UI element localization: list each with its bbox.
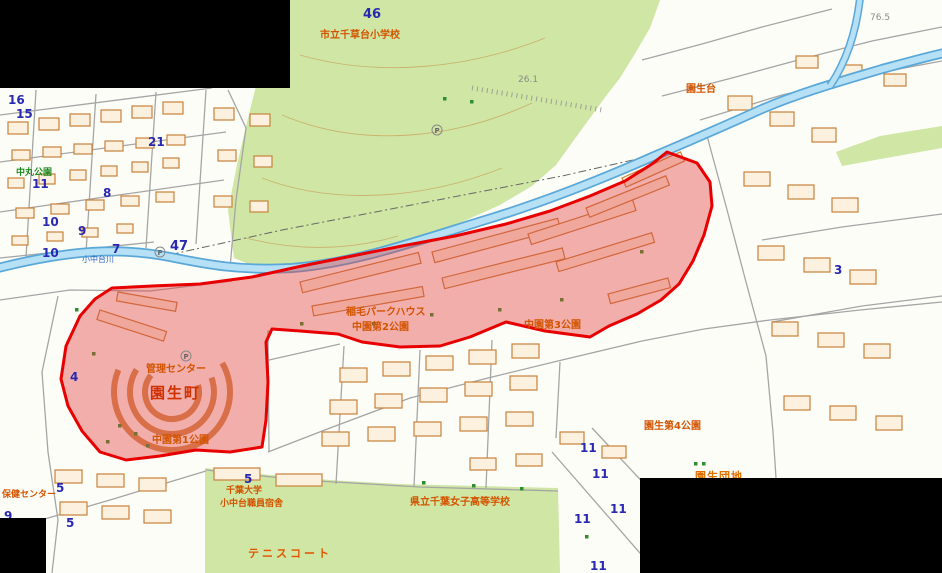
block-number: 3 (834, 263, 842, 277)
block-number: 10 (42, 246, 59, 260)
block-number: 5 (66, 516, 74, 530)
block-number: 8 (103, 186, 111, 200)
svg-text:P: P (435, 127, 440, 135)
elevation-point: 26.1 (518, 75, 538, 85)
label-nakazono3-park: 中園第3公園 (524, 318, 581, 331)
label-nakazono1-park: 中園第1公園 (152, 433, 209, 446)
map-canvas[interactable]: P P P 46 市立千草台小学校 26.1 76.5 園生台 16 15 21… (0, 0, 942, 573)
block-number: 11 (610, 502, 627, 516)
label-univ-dorm: 小中台職員宿舎 (219, 497, 284, 509)
block-number: 46 (363, 7, 381, 22)
svg-text:P: P (158, 249, 163, 257)
label-river-name: 小中台川 (82, 254, 114, 264)
label-tennis-court: テニスコート (248, 547, 332, 560)
block-number: 5 (244, 472, 252, 486)
block-number: 47 (170, 239, 188, 254)
block-number: 11 (590, 559, 607, 573)
label-girls-school: 県立千葉女子高等学校 (410, 495, 511, 508)
block-number: 11 (32, 177, 49, 191)
elevation-point: 76.5 (870, 13, 890, 23)
block-number: 11 (580, 441, 597, 455)
block-number: 10 (42, 215, 59, 229)
city-map[interactable]: P P P 46 市立千草台小学校 26.1 76.5 園生台 16 15 21… (0, 0, 942, 573)
label-health-center: 保健センター (1, 488, 56, 500)
label-sonno4-park: 園生第4公園 (644, 419, 701, 432)
block-number: 21 (148, 135, 165, 149)
block-number: 16 (8, 93, 25, 107)
block-number: 5 (56, 481, 64, 495)
block-number: 11 (592, 467, 609, 481)
label-park-house: 稲毛パークハウス (346, 305, 426, 318)
redaction-box-top-left (0, 0, 290, 88)
label-sonno-town: 園生町 (150, 384, 201, 402)
redaction-box-bottom-left (0, 518, 46, 573)
block-number: 7 (112, 242, 120, 256)
label-mgmt-center: 管理センター (146, 362, 206, 375)
label-school-north: 市立千草台小学校 (320, 28, 401, 41)
block-number: 4 (70, 370, 78, 384)
redaction-box-bottom-right (640, 478, 942, 573)
svg-text:P: P (184, 353, 189, 361)
label-nakazono2-park: 中園第2公園 (352, 320, 409, 333)
block-number: 11 (574, 512, 591, 526)
block-number: 15 (16, 107, 33, 121)
block-number: 9 (78, 224, 86, 238)
label-sonnodai: 園生台 (686, 82, 716, 95)
